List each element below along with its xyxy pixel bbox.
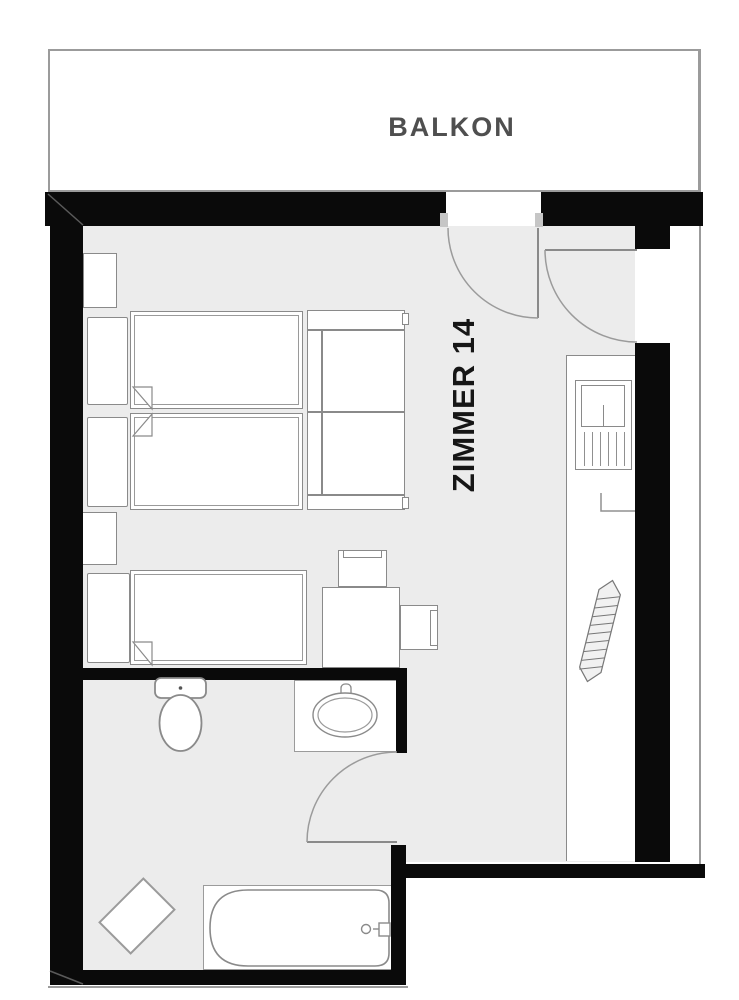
bed-1-mattress bbox=[134, 315, 299, 405]
room-label: ZIMMER 14 bbox=[446, 305, 486, 505]
floor-plan: BALKON ZIMMER 14 bbox=[0, 0, 739, 1000]
bed-3-mattress bbox=[134, 574, 303, 661]
wall-bottom-right bbox=[395, 864, 705, 878]
bed-1 bbox=[130, 311, 303, 409]
nightstand-middle bbox=[82, 512, 117, 565]
sofa bbox=[307, 310, 405, 510]
tv-minibar-divider bbox=[603, 405, 604, 427]
sink-vanity bbox=[294, 680, 397, 752]
wall-bottom bbox=[50, 970, 406, 985]
balcony-label: BALKON bbox=[372, 112, 532, 143]
pillow-bed2 bbox=[87, 417, 128, 507]
tv-minibar-unit bbox=[575, 380, 632, 470]
wall-top-left bbox=[45, 192, 446, 226]
wall-right bbox=[635, 343, 670, 862]
sofa-tab-top bbox=[402, 313, 409, 325]
bottom-boundary-line bbox=[48, 986, 408, 988]
pillow-bed1 bbox=[87, 317, 128, 405]
wall-entry-stub bbox=[635, 226, 670, 249]
desk bbox=[322, 587, 400, 668]
sofa-armrest-bottom bbox=[308, 494, 404, 496]
right-boundary-line bbox=[699, 49, 701, 878]
pillow-bed3 bbox=[87, 573, 130, 663]
side-chair-backrest bbox=[430, 610, 437, 646]
wall-bathroom-right-upper bbox=[396, 668, 407, 753]
desk-chair-backrest bbox=[343, 551, 382, 558]
sofa-backrest bbox=[321, 329, 323, 494]
bathtub-alcove bbox=[203, 885, 394, 970]
bed-2 bbox=[130, 413, 303, 510]
balcony-door-jamb-right bbox=[535, 213, 543, 227]
tv-minibar-vents bbox=[584, 432, 625, 466]
wall-left bbox=[50, 192, 83, 985]
sofa-tab-bottom bbox=[402, 497, 409, 509]
side-chair bbox=[400, 605, 438, 650]
bed-3 bbox=[130, 570, 307, 665]
desk-chair bbox=[338, 550, 387, 587]
wall-top-right bbox=[541, 192, 703, 226]
balcony-door-jamb-left bbox=[440, 213, 448, 227]
nightstand-top bbox=[83, 253, 117, 308]
wall-bathroom-top bbox=[83, 668, 407, 680]
bed-2-mattress bbox=[134, 417, 299, 506]
